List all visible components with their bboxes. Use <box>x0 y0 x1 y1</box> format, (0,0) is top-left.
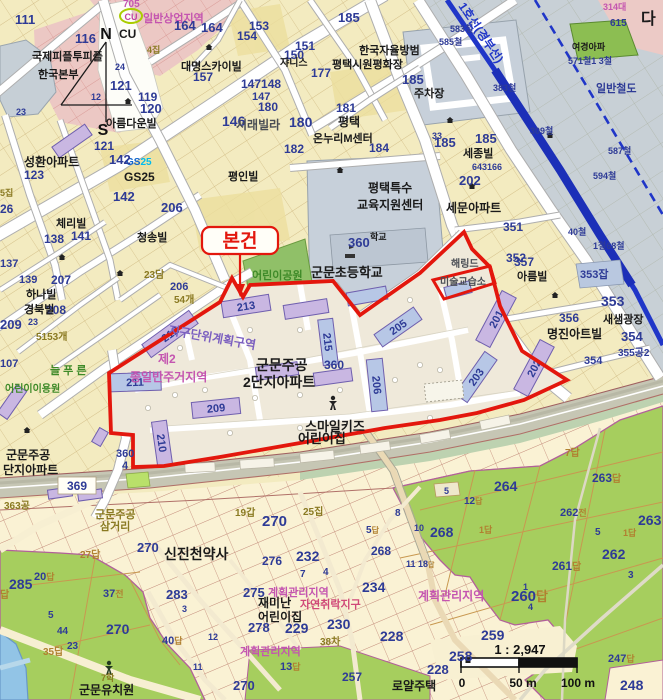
svg-text:40답: 40답 <box>162 635 183 647</box>
svg-text:군문주공: 군문주공 <box>256 357 308 373</box>
svg-text:자연취락지구: 자연취락지구 <box>300 597 361 611</box>
svg-text:온누리M센터: 온누리M센터 <box>313 131 373 145</box>
svg-text:종일반주거지역: 종일반주거지역 <box>130 369 207 384</box>
svg-text:232: 232 <box>296 548 320 564</box>
svg-text:2단지아파트: 2단지아파트 <box>243 374 315 390</box>
svg-text:5: 5 <box>48 610 54 621</box>
svg-text:142: 142 <box>113 189 135 204</box>
svg-text:주차장: 주차장 <box>414 86 444 100</box>
svg-text:11: 11 <box>193 662 203 672</box>
svg-text:7: 7 <box>300 569 306 580</box>
svg-text:615: 615 <box>610 18 627 29</box>
svg-text:7답: 7답 <box>565 447 581 459</box>
svg-text:세문아파트: 세문아파트 <box>446 200 501 215</box>
svg-text:24: 24 <box>115 62 125 72</box>
svg-text:국제피플투피플: 국제피플투피플 <box>32 49 103 63</box>
svg-text:705: 705 <box>123 0 140 10</box>
svg-text:360: 360 <box>116 448 134 460</box>
svg-text:5: 5 <box>595 527 601 538</box>
svg-text:27답: 27답 <box>80 549 101 561</box>
svg-text:247답: 247답 <box>608 653 635 665</box>
svg-text:12: 12 <box>91 92 101 102</box>
svg-text:270: 270 <box>233 678 255 693</box>
svg-text:258: 258 <box>449 648 473 664</box>
svg-text:CU: CU <box>125 12 138 22</box>
svg-text:262: 262 <box>602 546 626 562</box>
svg-text:50 m: 50 m <box>509 676 536 690</box>
svg-text:185: 185 <box>338 10 360 25</box>
svg-text:평택특수: 평택특수 <box>368 180 412 195</box>
svg-text:202: 202 <box>459 173 481 188</box>
svg-text:278: 278 <box>248 620 270 635</box>
svg-text:207: 207 <box>51 273 71 287</box>
svg-text:4: 4 <box>323 567 329 578</box>
svg-text:아름다운빌: 아름다운빌 <box>106 116 157 130</box>
svg-text:23담: 23담 <box>144 268 165 281</box>
svg-text:215: 215 <box>320 332 334 352</box>
svg-text:139: 139 <box>19 274 37 286</box>
svg-text:268: 268 <box>430 524 454 540</box>
svg-text:아름빌: 아름빌 <box>517 269 547 283</box>
svg-text:1철68철: 1철68철 <box>593 240 625 251</box>
svg-text:177: 177 <box>311 66 331 80</box>
svg-text:늘 푸 른: 늘 푸 른 <box>50 364 86 377</box>
svg-text:CU: CU <box>119 27 136 41</box>
svg-text:100 m: 100 m <box>561 676 595 690</box>
svg-text:7학: 7학 <box>101 672 115 683</box>
svg-text:230: 230 <box>327 616 351 632</box>
svg-text:재미난: 재미난 <box>258 595 291 610</box>
svg-text:3: 3 <box>628 570 634 581</box>
svg-text:1답: 1답 <box>479 524 493 535</box>
svg-text:12: 12 <box>208 632 218 642</box>
svg-text:587철: 587철 <box>608 145 631 156</box>
svg-text:어린이이용원: 어린이이용원 <box>5 382 60 395</box>
svg-text:184: 184 <box>369 141 389 155</box>
svg-text:154: 154 <box>237 29 257 43</box>
svg-text:하나빌: 하나빌 <box>26 287 56 301</box>
svg-text:164: 164 <box>201 20 223 35</box>
svg-text:3: 3 <box>182 604 187 614</box>
svg-text:평인빌: 평인빌 <box>228 169 258 183</box>
svg-text:청송빌: 청송빌 <box>137 230 167 244</box>
svg-text:360: 360 <box>348 235 370 250</box>
svg-text:23: 23 <box>67 641 79 652</box>
svg-text:한국본부: 한국본부 <box>38 67 78 81</box>
svg-text:107: 107 <box>0 358 18 370</box>
svg-text:평택시원평화장: 평택시원평화장 <box>332 57 403 71</box>
svg-text:257: 257 <box>342 670 362 684</box>
svg-text:신진천약사: 신진천약사 <box>164 546 229 562</box>
svg-text:26: 26 <box>0 202 14 216</box>
svg-text:학교: 학교 <box>370 231 387 242</box>
svg-text:미술교습소: 미술교습소 <box>440 275 486 288</box>
svg-text:369: 369 <box>67 479 87 493</box>
svg-text:GS25: GS25 <box>124 170 155 184</box>
svg-text:234: 234 <box>362 579 386 595</box>
svg-text:다: 다 <box>641 10 656 28</box>
svg-text:1: 1 <box>523 582 528 592</box>
svg-text:1답: 1답 <box>623 527 637 538</box>
svg-text:1 : 2,947: 1 : 2,947 <box>494 642 545 657</box>
svg-text:138: 138 <box>44 232 64 246</box>
svg-text:쟈니스: 쟈니스 <box>280 56 308 69</box>
svg-text:141: 141 <box>71 229 91 243</box>
svg-text:111: 111 <box>15 12 35 27</box>
svg-text:명진아트빌: 명진아트빌 <box>547 326 602 341</box>
svg-text:군문유치원: 군문유치원 <box>79 682 134 697</box>
svg-text:643166: 643166 <box>472 162 502 172</box>
svg-text:185: 185 <box>434 135 456 150</box>
svg-text:116: 116 <box>75 31 96 46</box>
svg-text:20답: 20답 <box>34 571 55 583</box>
svg-text:206: 206 <box>170 281 188 293</box>
svg-text:5153개: 5153개 <box>36 330 67 343</box>
svg-text:180: 180 <box>258 100 278 114</box>
svg-text:23: 23 <box>28 317 38 327</box>
svg-text:157: 157 <box>193 70 213 84</box>
svg-text:123: 123 <box>24 168 44 182</box>
svg-text:해링드: 해링드 <box>451 257 479 270</box>
svg-text:309철: 309철 <box>530 125 553 136</box>
svg-text:228: 228 <box>380 628 404 644</box>
svg-text:5: 5 <box>444 486 449 496</box>
svg-text:206: 206 <box>369 375 383 395</box>
svg-text:585철: 585철 <box>439 36 462 47</box>
svg-text:121: 121 <box>94 139 114 153</box>
svg-text:5답: 5답 <box>366 525 380 536</box>
svg-text:평택: 평택 <box>338 114 360 129</box>
svg-text:답: 답 <box>0 589 10 601</box>
svg-text:276: 276 <box>262 554 282 568</box>
svg-text:185: 185 <box>475 131 497 146</box>
svg-text:성환아파트: 성환아파트 <box>24 154 79 169</box>
svg-text:서래빌라: 서래빌라 <box>236 117 280 132</box>
svg-text:체리빌: 체리빌 <box>56 216 86 230</box>
svg-text:353: 353 <box>601 293 625 309</box>
svg-text:4: 4 <box>122 460 129 472</box>
svg-text:37전: 37전 <box>103 588 124 600</box>
svg-text:270: 270 <box>137 540 159 555</box>
svg-text:본건: 본건 <box>223 230 258 252</box>
svg-text:181: 181 <box>336 101 356 115</box>
svg-text:12답: 12답 <box>464 496 483 507</box>
svg-text:교육지원센터: 교육지원센터 <box>357 197 423 212</box>
svg-text:142: 142 <box>109 152 131 167</box>
svg-text:121: 121 <box>110 78 132 93</box>
svg-text:571철1 3철: 571철1 3철 <box>568 55 612 66</box>
svg-text:147148: 147148 <box>241 77 281 91</box>
svg-text:206: 206 <box>161 200 183 215</box>
svg-text:248: 248 <box>620 677 644 693</box>
svg-text:여경아파: 여경아파 <box>572 41 606 52</box>
svg-text:군문주공: 군문주공 <box>95 508 135 521</box>
svg-text:8: 8 <box>395 508 401 519</box>
svg-text:185: 185 <box>402 72 424 87</box>
svg-text:0: 0 <box>459 676 466 690</box>
svg-text:19갑: 19갑 <box>235 507 256 519</box>
svg-text:137: 137 <box>0 258 18 270</box>
svg-text:314대: 314대 <box>603 1 626 12</box>
svg-text:259: 259 <box>481 627 505 643</box>
svg-text:로얄주택: 로얄주택 <box>392 678 436 693</box>
svg-text:270: 270 <box>106 621 130 637</box>
svg-text:44: 44 <box>57 626 69 637</box>
svg-text:계획관리지역: 계획관리지역 <box>418 588 484 603</box>
svg-text:10: 10 <box>414 523 424 533</box>
svg-text:182: 182 <box>284 142 304 156</box>
svg-text:세종빌: 세종빌 <box>463 146 493 160</box>
svg-text:351: 351 <box>503 220 523 234</box>
svg-text:일반철도: 일반철도 <box>596 81 636 95</box>
svg-text:363공: 363공 <box>4 500 30 512</box>
svg-text:계획관리지역: 계획관리지역 <box>240 644 301 658</box>
svg-text:40철: 40철 <box>568 226 586 237</box>
svg-text:594철: 594철 <box>593 170 616 181</box>
svg-text:270: 270 <box>262 513 287 530</box>
svg-text:355공2: 355공2 <box>618 347 650 359</box>
svg-text:23: 23 <box>16 107 26 117</box>
svg-text:군문초등학교: 군문초등학교 <box>311 265 383 280</box>
svg-text:285: 285 <box>9 576 33 592</box>
svg-text:삼거리: 삼거리 <box>100 519 130 533</box>
svg-text:209: 209 <box>206 402 226 416</box>
svg-text:263답: 263답 <box>592 471 622 485</box>
svg-text:261답: 261답 <box>552 559 582 573</box>
svg-text:경북빌: 경북빌 <box>24 302 54 316</box>
svg-text:229: 229 <box>285 620 309 636</box>
svg-text:54개: 54개 <box>174 293 194 306</box>
svg-text:180: 180 <box>289 114 313 130</box>
svg-text:354: 354 <box>584 355 603 367</box>
svg-text:383철: 383철 <box>493 82 516 93</box>
svg-text:228: 228 <box>427 662 449 677</box>
svg-text:262전: 262전 <box>560 507 587 519</box>
svg-text:354: 354 <box>621 329 643 344</box>
svg-text:25집: 25집 <box>303 506 323 518</box>
svg-text:35답: 35답 <box>43 646 64 658</box>
svg-text:268: 268 <box>371 544 391 558</box>
svg-text:120: 120 <box>140 101 162 116</box>
svg-text:4집: 4집 <box>147 44 160 55</box>
svg-text:어린이공원: 어린이공원 <box>252 268 303 282</box>
svg-text:264: 264 <box>494 478 518 494</box>
svg-text:어린이집: 어린이집 <box>298 431 346 446</box>
svg-text:164: 164 <box>174 18 196 33</box>
svg-text:단지아파트: 단지아파트 <box>3 462 58 477</box>
svg-text:5집: 5집 <box>0 187 13 198</box>
svg-text:제2: 제2 <box>158 352 176 366</box>
svg-text:N: N <box>100 26 112 43</box>
svg-text:360: 360 <box>324 358 344 372</box>
svg-text:군문주공: 군문주공 <box>6 448 50 462</box>
svg-text:4: 4 <box>528 602 533 612</box>
svg-text:209: 209 <box>0 317 22 332</box>
svg-text:263: 263 <box>638 512 662 528</box>
svg-text:13답: 13답 <box>280 661 301 673</box>
svg-text:210: 210 <box>154 433 168 453</box>
svg-text:한국자율방범: 한국자율방범 <box>359 43 420 57</box>
svg-text:283: 283 <box>166 587 188 602</box>
svg-text:356: 356 <box>559 311 579 325</box>
svg-text:357: 357 <box>514 255 534 269</box>
svg-text:353잡: 353잡 <box>580 267 608 281</box>
svg-text:새샘광장: 새샘광장 <box>603 312 643 326</box>
svg-text:38차: 38차 <box>320 635 341 648</box>
